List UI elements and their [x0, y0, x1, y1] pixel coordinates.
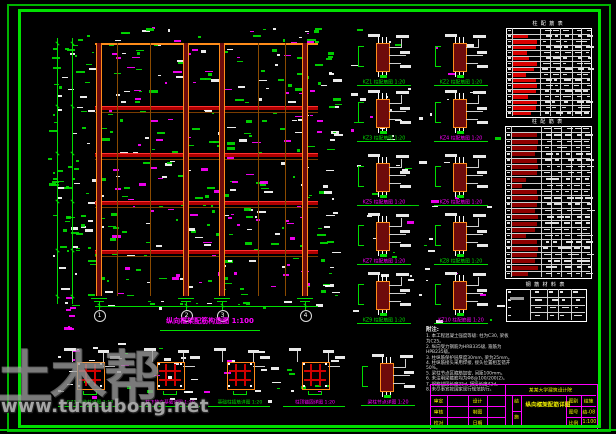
titleblock-label: 审核 [432, 408, 446, 415]
titleblock-label: 校对 [432, 419, 446, 426]
titleblock-type-char: 施 [513, 413, 520, 420]
titleblock-line [468, 395, 469, 428]
titleblock-project: 某某大学建筑设计院 [514, 386, 587, 393]
titleblock-line [430, 395, 596, 396]
titleblock-info-label: 比例 [568, 419, 580, 426]
titleblock-label: 审定 [432, 397, 446, 404]
titleblock-info-label: 图别 [568, 397, 580, 404]
titleblock-line [447, 395, 448, 428]
cad-canvas: 1234 KZ1 柱配筋图 1:20KZ2 柱配筋图 1:20KZ3 柱配筋图 … [0, 0, 616, 434]
titleblock-label: 制图 [470, 408, 485, 415]
titleblock-label: 日期 [470, 419, 485, 426]
titleblock-info-value: 1:100 [583, 419, 595, 425]
titleblock-type-char: 结 [513, 397, 520, 404]
titleblock-line [521, 395, 522, 428]
titleblock-info-value: 结施 [583, 397, 595, 404]
titleblock-main-title: 纵向框架配筋详图 [526, 401, 562, 409]
watermark-url: www.tumubong.net [1, 396, 209, 417]
titleblock-info-value: 结-08 [583, 408, 595, 415]
titleblock-line [487, 395, 488, 428]
titleblock-line [505, 384, 506, 428]
titleblock-line [512, 411, 521, 412]
titleblock-label: 设计 [470, 397, 485, 404]
titleblock-info-label: 图号 [568, 408, 580, 415]
